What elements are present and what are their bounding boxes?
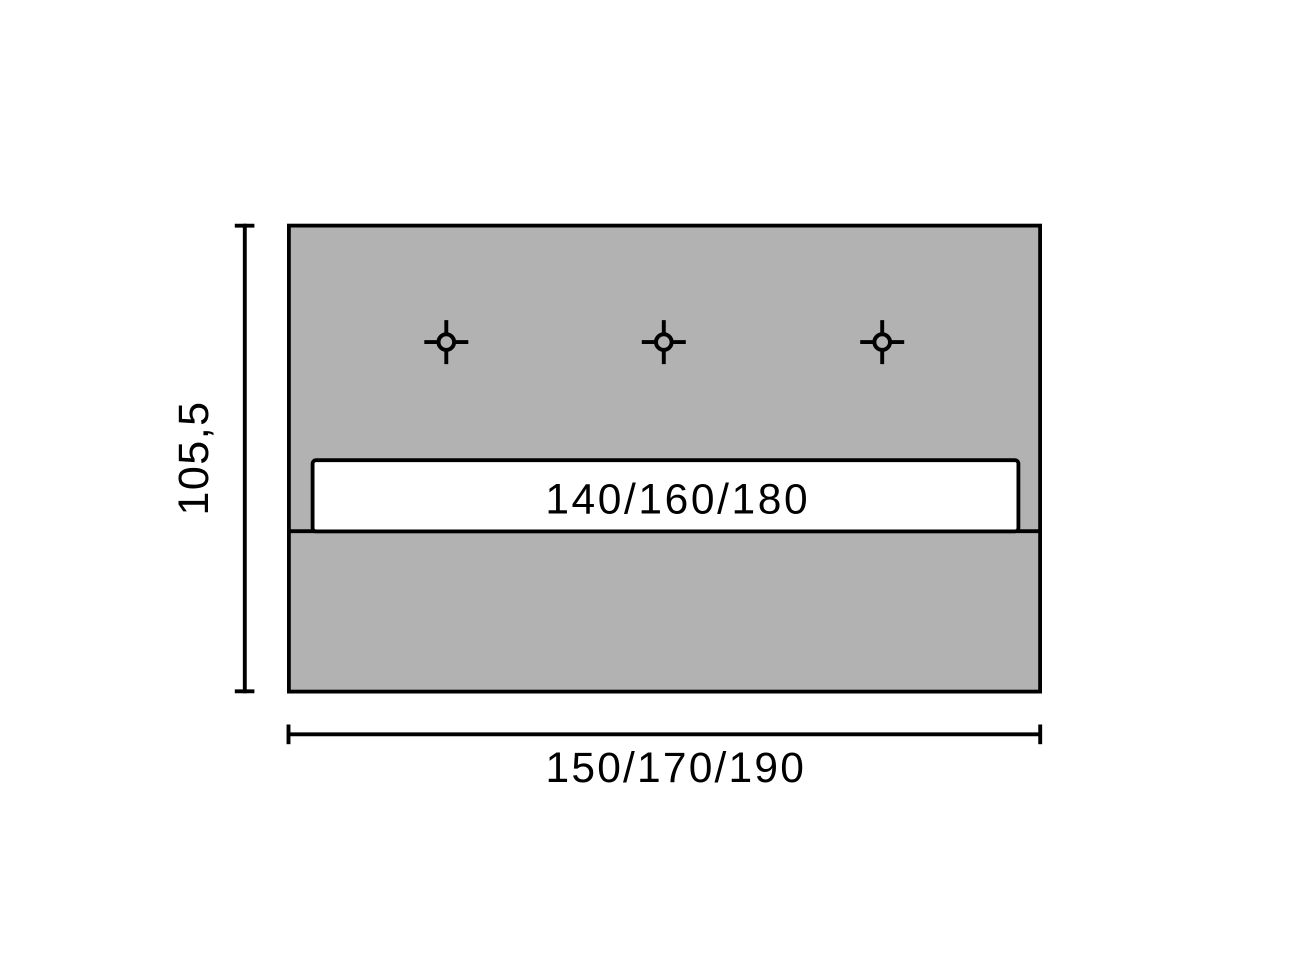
svg-text:150/170/190: 150/170/190 [546, 745, 807, 792]
svg-text:105,5: 105,5 [170, 400, 218, 515]
svg-text:140/160/180: 140/160/180 [545, 477, 810, 524]
